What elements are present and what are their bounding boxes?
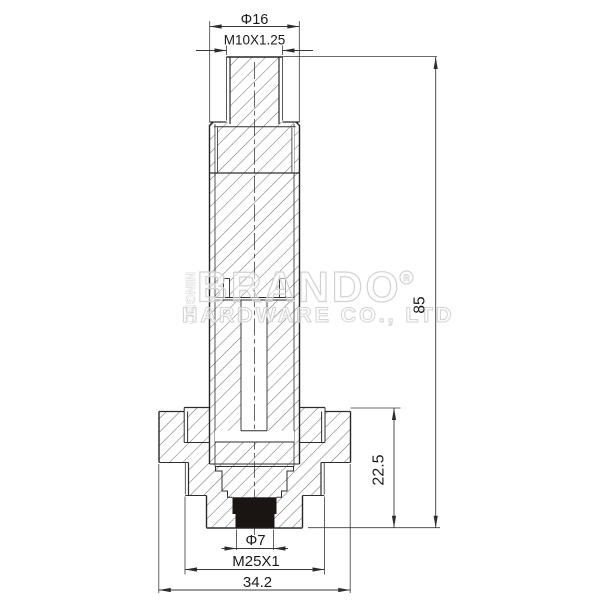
svg-text:85: 85 [412,296,429,313]
svg-text:M10X1.25: M10X1.25 [224,33,286,48]
svg-text:M25X1: M25X1 [232,553,280,570]
svg-text:Φ16: Φ16 [241,12,269,28]
svg-text:R: R [403,273,410,283]
svg-text:Φ7: Φ7 [245,532,265,549]
svg-text:22.5: 22.5 [371,454,388,485]
svg-text:34.2: 34.2 [243,574,272,591]
